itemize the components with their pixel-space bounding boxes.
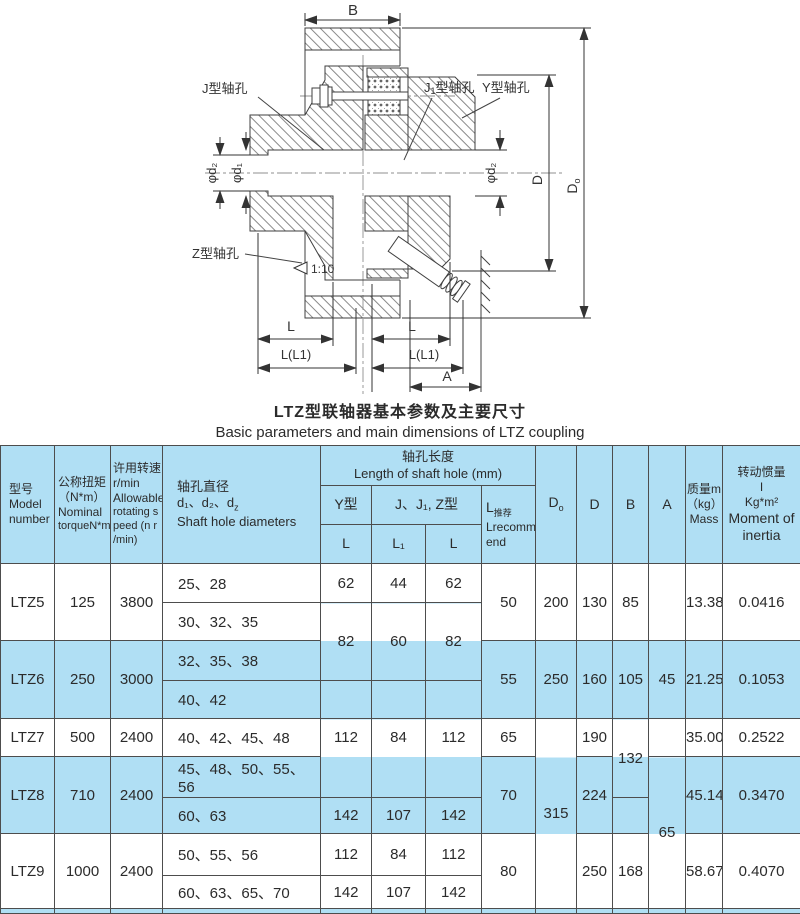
- cell-ltz8-torque: 710: [55, 757, 111, 834]
- cell-ltz8-bores-b: 60、63: [163, 798, 321, 834]
- dim-phid2-left-label: φd₂: [204, 163, 219, 184]
- cell-ltz6-moi: 0.1053: [723, 641, 800, 719]
- cell-ltz9-l-a: 112: [321, 834, 372, 876]
- cell-ltz5-d0: 200: [536, 564, 577, 641]
- cell-ltz9-b: 168: [613, 834, 649, 909]
- coupling-drawing: B D Do φd₂ φd₁ φd₂ L L L(L1) L(L1) A 1:1…: [0, 0, 800, 396]
- table-title-en: Basic parameters and main dimensions of …: [0, 424, 800, 441]
- cell-ltz6-bores-a: 32、35、38: [163, 641, 321, 681]
- cell-ltz9-model: LTZ9: [1, 834, 55, 909]
- cell-ltz5-mass: 13.38: [686, 564, 723, 641]
- header-torque: 公称扭矩（N*m）NominaltorqueN*m: [55, 446, 111, 564]
- cell-ltz9-d: 250: [577, 834, 613, 909]
- header-col-L2: L: [426, 525, 482, 564]
- header-d0: Do: [536, 446, 577, 564]
- cell-ltz6-lrec: 55: [482, 641, 536, 719]
- cell-ltz8-b-empty: [613, 798, 649, 834]
- header-l-recommend: L推荐 Lrecommend: [482, 486, 536, 564]
- cell-ltz8-l1: 107: [372, 798, 426, 834]
- dim-ll1-left-label: L(L1): [281, 347, 311, 362]
- cell-ltz8-speed: 2400: [111, 757, 163, 834]
- cell-ltz6-bores-b: 40、42: [163, 681, 321, 719]
- header-b: B: [613, 446, 649, 564]
- cell-shared56-lz: 82: [426, 603, 482, 681]
- header-moment-of-inertia: 转动惯量IKg*m²Moment of inertia: [723, 446, 800, 564]
- cell-ltz9-l-b: 142: [321, 876, 372, 909]
- cell-ltz5-torque: 125: [55, 564, 111, 641]
- cell-ltz9-bores-a: 50、55、56: [163, 834, 321, 876]
- cell-ltz6-lz-empty: [426, 681, 482, 719]
- cell-ltz6-b: 105: [613, 641, 649, 719]
- cell-ltz6-mass: 21.25: [686, 641, 723, 719]
- dim-ll1-right-label: L(L1): [409, 347, 439, 362]
- cell-ltz5-bores-a: 25、28: [163, 564, 321, 603]
- coupling-cross-section: B D Do φd₂ φd₁ φd₂ L L L(L1) L(L1) A 1:1…: [0, 0, 800, 396]
- cell-shared56-l1: 60: [372, 603, 426, 681]
- cell-ltz7-model: LTZ7: [1, 719, 55, 757]
- cell-ltz7-speed: 2400: [111, 719, 163, 757]
- bottom-strip: [1, 909, 800, 914]
- cell-ltz7-lrec: 65: [482, 719, 536, 757]
- header-jjz-type: J、J₁, Z型: [372, 486, 482, 525]
- cell-ltz5-b: 85: [613, 564, 649, 641]
- z-hole-label: Z型轴孔: [192, 246, 239, 261]
- cell-ltz7-bores-a: 40、42、45、48: [163, 719, 321, 757]
- header-bore-diameters: 轴孔直径 d₁、d₂、dz Shaft hole diameters: [163, 446, 321, 564]
- dim-l-left-label: L: [287, 318, 295, 334]
- cell-shared89-a: 65: [649, 757, 686, 909]
- parameter-table: 型号Modelnumber 公称扭矩（N*m）NominaltorqueN*m …: [0, 445, 800, 914]
- dim-b-label: B: [348, 2, 358, 19]
- cell-ltz9-bores-b: 60、63、65、70: [163, 876, 321, 909]
- dim-phid2-right-label: φd₂: [483, 163, 498, 184]
- y-hole-label: Y型轴孔: [482, 80, 530, 95]
- catalog-page: B D Do φd₂ φd₁ φd₂ L L L(L1) L(L1) A 1:1…: [0, 0, 800, 914]
- dim-d0-label: Do: [564, 178, 582, 193]
- cell-ltz7-l1: 84: [372, 719, 426, 798]
- cell-ltz8-lrec: 70: [482, 757, 536, 834]
- cell-ltz8-model: LTZ8: [1, 757, 55, 834]
- cell-ltz9-mass: 58.67: [686, 834, 723, 909]
- cell-ltz9-moi: 0.4070: [723, 834, 800, 909]
- cell-ltz8-d: 224: [577, 757, 613, 834]
- cell-ltz9-torque: 1000: [55, 834, 111, 909]
- cell-ltz5-a-empty: [649, 564, 686, 641]
- header-shaft-hole-length: 轴孔长度Length of shaft hole (mm): [321, 446, 536, 486]
- cell-ltz6-a: 45: [649, 641, 686, 719]
- taper-label: 1:10: [311, 262, 335, 276]
- cell-ltz8-mass: 45.14: [686, 757, 723, 834]
- cell-ltz9-l1-a: 84: [372, 834, 426, 876]
- cell-shared789-d0: 315: [536, 719, 577, 909]
- cell-ltz6-torque: 250: [55, 641, 111, 719]
- dim-d-label: D: [529, 175, 545, 185]
- cell-ltz7-lz: 112: [426, 719, 482, 798]
- cell-ltz5-speed: 3800: [111, 564, 163, 641]
- cell-ltz6-d: 160: [577, 641, 613, 719]
- cell-ltz9-speed: 2400: [111, 834, 163, 909]
- header-mass: 质量m（kg）Mass: [686, 446, 723, 564]
- cell-ltz5-l1: 44: [372, 564, 426, 603]
- dim-a-label: A: [442, 368, 452, 384]
- header-a: A: [649, 446, 686, 564]
- header-d: D: [577, 446, 613, 564]
- cell-ltz5-bores-b: 30、32、35: [163, 603, 321, 641]
- header-y-type: Y型: [321, 486, 372, 525]
- cell-ltz6-l1-empty: [372, 681, 426, 719]
- header-speed: 许用转速r/minAllowablerotating speed (n r/mi…: [111, 446, 163, 564]
- cell-ltz6-speed: 3000: [111, 641, 163, 719]
- cell-ltz8-moi: 0.3470: [723, 757, 800, 834]
- cell-ltz7-d: 190: [577, 719, 613, 757]
- cell-ltz6-d0: 250: [536, 641, 577, 719]
- header-model: 型号Modelnumber: [1, 446, 55, 564]
- j-hole-label: J型轴孔: [202, 81, 248, 96]
- cell-ltz9-l1-b: 107: [372, 876, 426, 909]
- cell-ltz7-l: 112: [321, 719, 372, 798]
- cell-ltz7-a-empty: [649, 719, 686, 757]
- dim-l-right-label: L: [408, 318, 416, 334]
- table-title-zh: LTZ型联轴器基本参数及主要尺寸: [0, 398, 800, 422]
- cell-shared78-b: 132: [613, 719, 649, 798]
- cell-ltz8-lz: 142: [426, 798, 482, 834]
- cell-ltz7-moi: 0.2522: [723, 719, 800, 757]
- cell-ltz9-lrec: 80: [482, 834, 536, 909]
- cell-shared56-l: 82: [321, 603, 372, 681]
- cell-ltz8-bores-a: 45、48、50、55、56: [163, 757, 321, 798]
- cell-ltz5-d: 130: [577, 564, 613, 641]
- cell-ltz6-l-empty: [321, 681, 372, 719]
- cell-ltz7-mass: 35.00: [686, 719, 723, 757]
- header-col-L: L: [321, 525, 372, 564]
- cell-ltz5-moi: 0.0416: [723, 564, 800, 641]
- cell-ltz5-l: 62: [321, 564, 372, 603]
- cell-ltz6-model: LTZ6: [1, 641, 55, 719]
- cell-ltz9-lz-a: 112: [426, 834, 482, 876]
- dim-phid1-label: φd₁: [229, 162, 244, 183]
- cell-ltz5-lz: 62: [426, 564, 482, 603]
- cell-ltz5-lrec: 50: [482, 564, 536, 641]
- cell-ltz5-model: LTZ5: [1, 564, 55, 641]
- cell-ltz7-torque: 500: [55, 719, 111, 757]
- cell-ltz8-l: 142: [321, 798, 372, 834]
- header-col-L1: L₁: [372, 525, 426, 564]
- cell-ltz9-lz-b: 142: [426, 876, 482, 909]
